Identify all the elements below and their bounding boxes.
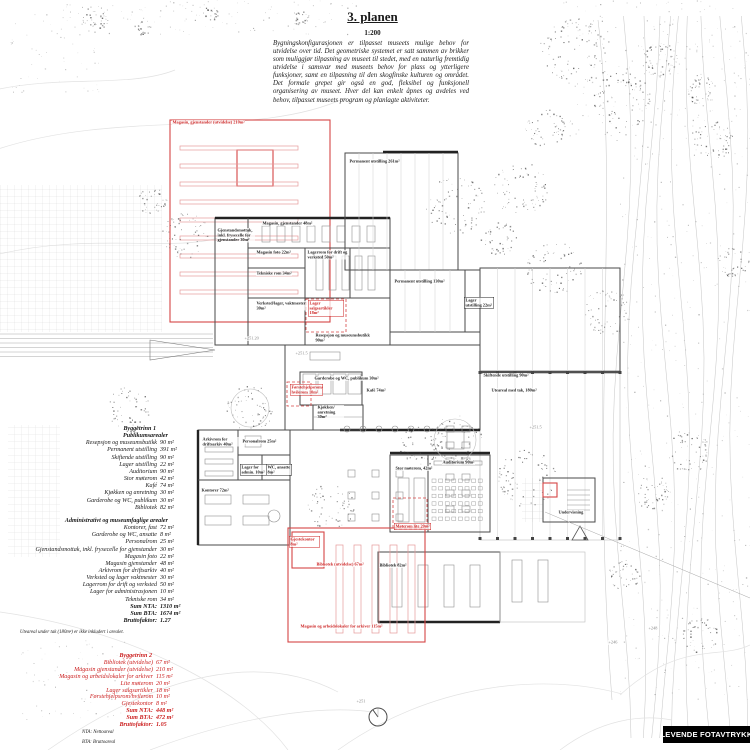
legend-item-label: Kontorer, fast [20,525,160,532]
legend-row: Sum BTA:472 m² [22,715,192,722]
plan-room-label: Lagerrom for drift og verksted 50m² [307,250,389,269]
level-marker: +251 [356,699,376,709]
legend-item-label: Garderobe og WC, ansatte [20,532,160,539]
legend-item-label: Garderobe og WC, publikum [20,498,160,505]
legend-item-area: 1.05 [156,722,192,729]
legend-item-area: 30 m² [160,547,196,554]
legend-row: Permanent utstilling391 m² [20,447,196,454]
legend-item-area: 1310 m² [160,604,196,611]
plan-room-label: Uteareal med tak, 180m² [491,388,583,398]
plan-room-label: Skiftende utstilling 90m² [483,373,575,383]
legend-row: Bruttofaktor:1.27 [20,618,196,625]
legend-item-area: 34 m² [160,597,196,604]
legend-item-label: Lager salgsartikler [22,688,156,695]
legend-item-label: Magasin og arbeidslokaler for arkiver [22,674,156,681]
legend-item-label: Gjestekontor [22,701,156,708]
plan-room-label: Personalrom 25m² [242,439,324,449]
legend-note: Uteareal under tak (180m²) er ikke inklu… [20,629,240,639]
title-block: 3. planen 1:200 [270,8,475,37]
legend-row: Magasin foto22 m² [20,554,196,561]
legend-phase1: Byggetrinn 1PublikumsarealerResepsjon og… [20,426,196,625]
legend-row: Bibliotek82 m² [20,505,196,512]
legend-item-area: 210 m² [156,667,192,674]
legend-item-label: Magasin gjenstander [20,561,160,568]
legend-row: Garderobe og WC, publikum30 m² [20,498,196,505]
legend-row: Sum BTA:1674 m² [20,611,196,618]
legend-row: Kjøkken og anretning30 m² [20,490,196,497]
plan-room-label: Magasin og arbeidslokaler for arkiver 11… [300,624,466,634]
legend-row: Bruttofaktor:1.05 [22,722,192,729]
legend-item-area: 22 m² [160,554,196,561]
legend-item-label: Kjøkken og anretning [20,490,160,497]
legend-item-area: 82 m² [160,505,196,512]
legend-row: Sum NTA:1310 m² [20,604,196,611]
legend-row: Skiftende utstilling90 m² [20,455,196,462]
legend-item-area: 115 m² [156,674,192,681]
legend-item-area: 30 m² [160,490,196,497]
legend-item-label: Sum NTA: [20,604,160,611]
legend-row: Magasin gjenstander48 m² [20,561,196,568]
legend-row: Magasin og arbeidslokaler for arkiver115… [22,674,192,681]
legend-item-label: Lager utstilling [20,462,160,469]
legend-row: Tekniske rom34 m² [20,597,196,604]
legend-item-label: Magasin foto [20,554,160,561]
legend-row: Lager utstilling22 m² [20,462,196,469]
legend-row: Gjenstandsmottak, inkl. frysecelle for g… [20,547,196,554]
plan-room-label: Lager salgsartikler 18m² [308,300,380,333]
legend-item-area: 22 m² [160,462,196,469]
legend-abbreviations: NTA: Nettoareal BTA: Bruttoareal [82,729,242,749]
legend-phase2-title: Byggetrinn 2 [22,653,192,660]
plan-room-label: Tekniske rom 34m² [256,271,328,281]
legend-item-label: Bruttofaktor: [20,618,160,625]
plan-room-label: Undervisning [558,510,610,520]
legend-item-area: 10 m² [160,589,196,596]
legend-item-area: 90 m² [160,455,196,462]
legend-item-label: Sum NTA: [22,708,156,715]
plan-room-label: Lager utstilling 22m² [464,297,524,320]
drawing-scale: 1:200 [270,29,475,37]
plan-room-label: Kjøkken/ anretning 30m² [317,405,371,434]
plan-room-label: Bibliotek 82m² [379,563,435,573]
plan-room-label: WC, ansatte 8m² [266,464,318,487]
legend-item-label: Tekniske rom [20,597,160,604]
legend-item-label: Kafé [20,483,160,490]
abbrev-nta: NTA: Nettoareal [82,729,178,735]
legend-phase1-title: Byggetrinn 1 [20,426,196,433]
legend-item-label: Arkivrom for driftsarkiv [20,568,160,575]
legend-row: Personalrom25 m² [20,539,196,546]
legend-item-label: Bibliotek (utvidelse) [22,660,156,667]
legend-item-label: Auditorium [20,469,160,476]
legend-phase2: Byggetrinn 2Bibliotek (utvidelse)67 m²Ma… [22,653,192,729]
level-marker: +251.20 [244,336,274,346]
plan-room-label: Permanent utstilling 261m² [349,159,451,169]
page-title: 3. planen [347,9,398,25]
legend-item-area: 30 m² [160,498,196,505]
legend-item-area: 1.27 [160,618,196,625]
legend-row: Lager for administrasjonen10 m² [20,589,196,596]
legend-item-label: Sum BTA: [20,611,160,618]
plan-room-label: Kafé 74m² [366,388,406,398]
legend-item-label: Førstehjelpsrom/hvilerom [22,694,156,701]
level-marker: +248 [648,626,668,636]
legend-item-area: 48 m² [160,561,196,568]
drawing-sheet: Magasin, gjenstander (utvidelse) 210m²Pe… [0,0,750,750]
legend-item-area: 391 m² [160,447,196,454]
legend-item-label: Sum BTA: [22,715,156,722]
legend-section-heading: Administrativt og museumfaglige arealer [20,518,196,525]
legend-row: Lite møterom20 m² [22,681,192,688]
legend-row: Magasin gjenstander (utvidelse)210 m² [22,667,192,674]
plan-room-label: Permanent utstilling 130m² [394,279,496,289]
legend-item-label: Lager for administrasjonen [20,589,160,596]
legend-item-label: Permanent utstilling [20,447,160,454]
level-marker: +246 [608,640,628,650]
legend-item-label: Skiftende utstilling [20,455,160,462]
plan-room-label: Gjestekontor 8m² [289,536,351,559]
plan-room-label: Møterom lite 20m² [394,523,468,537]
legend-item-label: Gjenstandsmottak, inkl. frysecelle for g… [20,547,160,554]
plan-room-label: Magasin, gjenstander (utvidelse) 210m² [172,120,318,130]
legend-item-area: 472 m² [156,715,192,722]
legend-item-label: Personalrom [20,539,160,546]
legend-item-label: Magasin gjenstander (utvidelse) [22,667,156,674]
legend-item-label: Stor møterom [20,476,160,483]
legend-item-label: Resepsjon og museumsbutikk [20,440,160,447]
legend-item-area: 67 m² [156,660,192,667]
legend-item-label: Bruttofaktor: [22,722,156,729]
level-marker: +251.5 [529,425,555,435]
legend-row: Bibliotek (utvidelse)67 m² [22,660,192,667]
studio-logo: LEVENDE FOTAVTRYKK [663,726,750,743]
legend-item-area: 20 m² [156,681,192,688]
plan-room-label: Auditorium 90m² [442,460,508,470]
legend-item-label: Bibliotek [20,505,160,512]
description-paragraph: Bygningskonfigurasjonen er tilpasset mus… [273,40,469,105]
plan-room-label: Resepsjon og museumsbutikk 90m² [315,333,427,352]
legend-item-area: 25 m² [160,539,196,546]
abbrev-bta: BTA: Bruttoareal [82,739,178,745]
level-marker: +251.5 [295,351,321,361]
legend-item-label: Lite møterom [22,681,156,688]
plan-room-label: Kontorer 72m² [201,488,258,498]
legend-item-area: 1674 m² [160,611,196,618]
